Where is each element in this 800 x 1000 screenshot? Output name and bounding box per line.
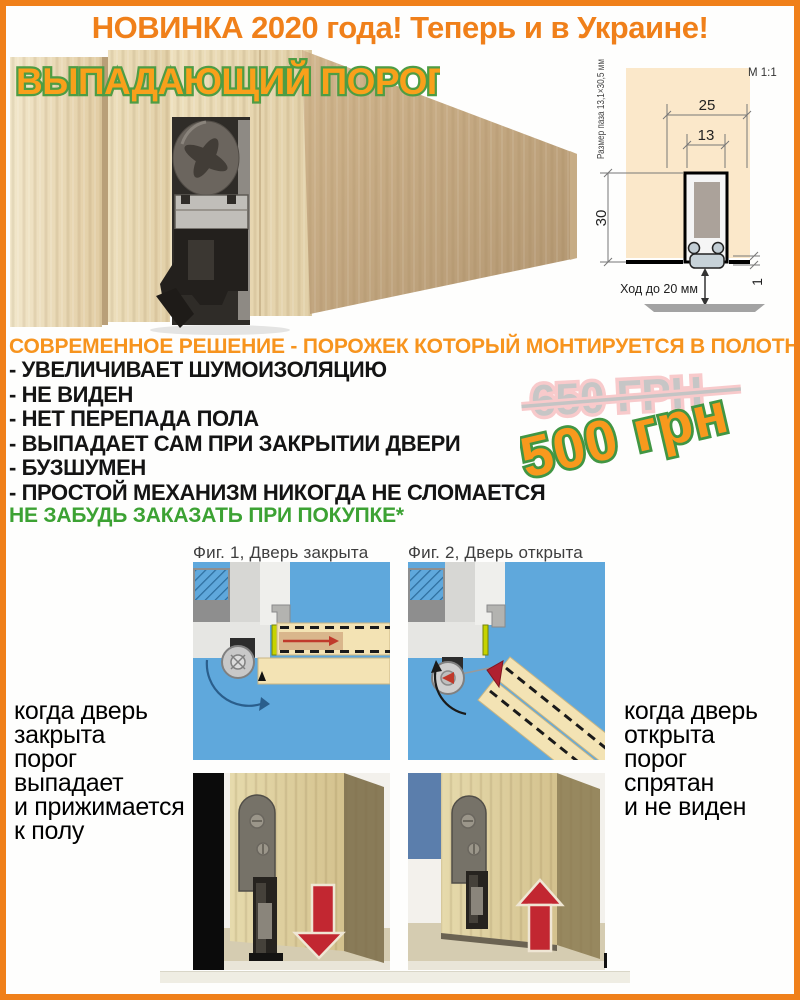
fig1-label: Фиг. 1, Дверь закрыта [193, 543, 368, 563]
product-title-banner: ВЫПАДАЮЩИЙ ПОРОГ [10, 54, 440, 108]
dark-edge-strip [193, 773, 224, 970]
fig2-label: Фиг. 2, Дверь открыта [408, 543, 583, 563]
feature-item: - УВЕЛИЧИВАЕТ ШУМОИЗОЛЯЦИЮ [9, 358, 545, 383]
baseboard-strip [160, 971, 630, 983]
feature-item: - НЕТ ПЕРЕПАДА ПОЛА [9, 407, 545, 432]
promo-headline: СОВРЕМЕННОЕ РЕШЕНИЕ - ПОРОЖЕК КОТОРЫЙ МО… [9, 335, 800, 359]
seal-strip [272, 625, 277, 655]
feature-item: - БУЗШУМЕН [9, 456, 545, 481]
tech-diagram: Размер паза 13,1×30,5 мм М 1:1 25 13 30 [588, 50, 795, 340]
dropped-seal [249, 953, 283, 961]
ad-flyer: НОВИНКА 2020 года! Теперь и в Украине! [0, 0, 800, 1000]
caption-door-closed: когда дверь закрыта порог выпадает и при… [14, 699, 184, 843]
groove-size-label: Размер паза 13,1×30,5 мм [596, 59, 607, 159]
feature-item: - ПРОСТОЙ МЕХАНИЗМ НИКОГДА НЕ СЛОМАЕТСЯ [9, 481, 545, 506]
dim-30-value: 30 [593, 210, 610, 227]
door-leaf-closed [258, 623, 390, 684]
figure-2-drawing [408, 562, 605, 760]
figure-1-drawing [193, 562, 390, 760]
order-reminder: НЕ ЗАБУДЬ ЗАКАЗАТЬ ПРИ ПОКУПКЕ* [9, 504, 404, 528]
banner-headline: НОВИНКА 2020 года! Теперь и в Украине! [0, 10, 800, 46]
dim-1-value: 1 [749, 278, 765, 286]
diagram-floor [644, 304, 765, 312]
scale-label: М 1:1 [748, 67, 777, 79]
feature-item: - НЕ ВИДЕН [9, 383, 545, 408]
hatched-wall-section [410, 570, 443, 600]
aluminium-profile [175, 195, 248, 229]
photo-door-open [408, 773, 605, 970]
feature-item: - ВЫПАДАЕТ САМ ПРИ ЗАКРЫТИИ ДВЕРИ [9, 432, 545, 457]
feature-list: - УВЕЛИЧИВАЕТ ШУМОИЗОЛЯЦИЮ - НЕ ВИДЕН - … [9, 358, 545, 505]
drop-seal-lip [690, 254, 724, 268]
caption-door-open: когда дверь открыта порог спрятан и не в… [624, 699, 758, 819]
price-block: 650 ГРН 500 грн [520, 366, 798, 496]
actuator-knob [173, 121, 239, 195]
hinge [222, 646, 254, 678]
product-title: ВЫПАДАЮЩИЙ ПОРОГ [16, 60, 440, 102]
travel-label: Ход до 20 мм [620, 282, 698, 296]
dim-13-value: 13 [698, 127, 715, 144]
wall-plan [408, 622, 485, 658]
dim-25-value: 25 [699, 97, 716, 114]
hatched-wall-section [195, 570, 228, 600]
seal-strip [483, 625, 488, 655]
photo-door-closed [193, 773, 390, 970]
cursor-tick [604, 953, 607, 968]
